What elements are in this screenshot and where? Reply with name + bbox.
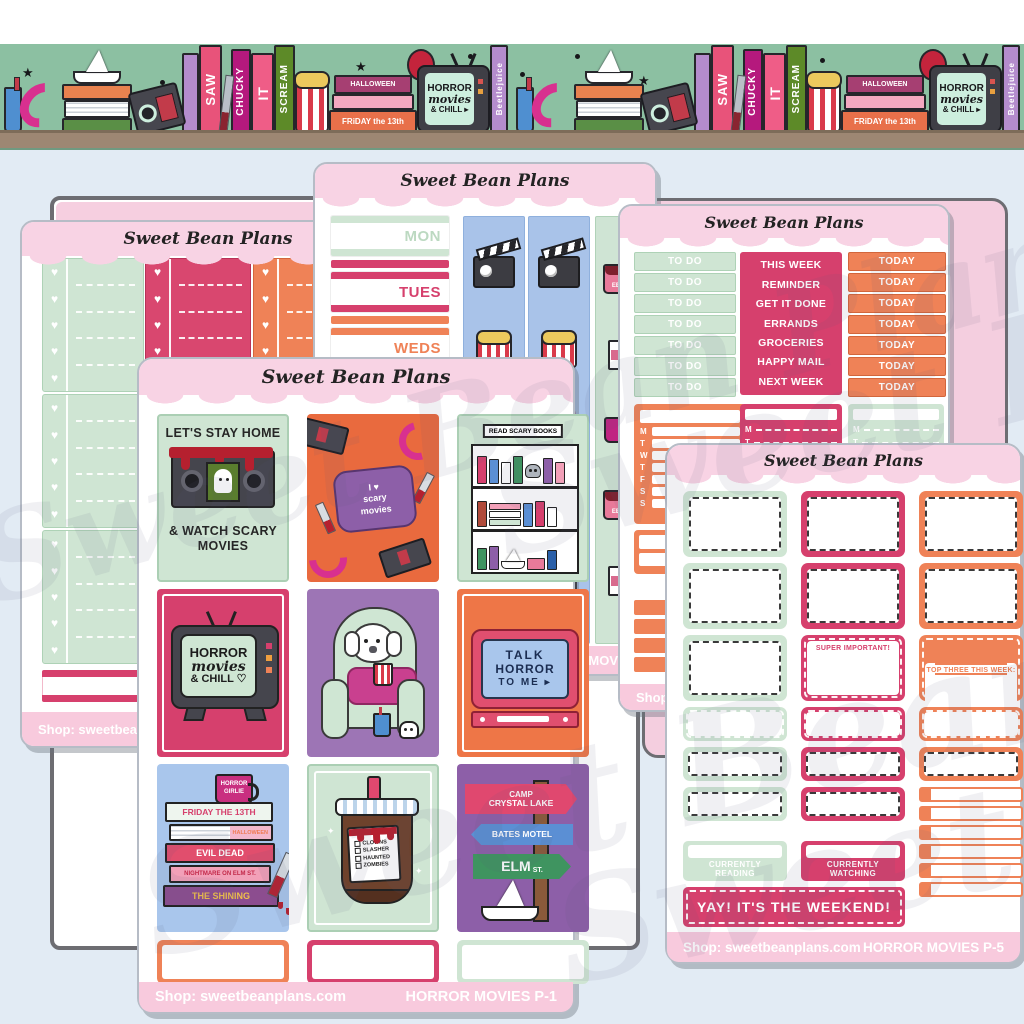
quarter-box xyxy=(801,747,905,781)
todo-strip: TO DO xyxy=(634,273,736,292)
half-box xyxy=(457,940,589,984)
quarter-box xyxy=(801,787,905,821)
fullbox-bookshelf: READ SCARY BOOKS xyxy=(457,414,589,582)
divider-strip xyxy=(331,260,449,268)
orange-label-strip xyxy=(919,806,1023,821)
brand-name: Sweet Bean Plans xyxy=(124,229,293,249)
drink-cup-illustration: CLOWNS SLASHER HAUNTED ZOMBIES xyxy=(341,812,413,904)
orange-label-strip xyxy=(919,863,1023,878)
date-cover-tues: TUES xyxy=(331,272,449,312)
today-strip: TODAY xyxy=(848,273,946,292)
saw-book: SAW xyxy=(711,45,734,133)
tv-horror-movies-chill: HORROR movies & CHILL ▸ xyxy=(417,65,490,133)
sheet-header: Sweet Bean Plans xyxy=(315,164,655,198)
shelf xyxy=(0,130,1024,148)
top-margin xyxy=(0,0,1024,44)
dog-icon xyxy=(351,623,395,663)
today-strip: TODAY xyxy=(848,252,946,271)
sheet-header: Sweet Bean Plans xyxy=(620,206,948,238)
clapperboard-icon xyxy=(473,256,515,288)
tv-horror-movies-chill: HORROR movies & CHILL ▸ xyxy=(929,65,1002,133)
vhs-icon xyxy=(307,417,350,456)
heart-checklist-box: ♥♥♥♥♥ xyxy=(42,258,144,392)
halloween-book-stack: HALLOWEEN FRiDAY the 13th xyxy=(841,75,929,133)
super-important-box: SUPER IMPORTANT! xyxy=(801,635,905,701)
half-box xyxy=(157,940,289,984)
horror-shelf-banner: ★ ★ ★ ★ SAW CHUCKY xyxy=(0,44,1024,150)
book-spine: HALLOWEEN xyxy=(169,824,273,841)
currently-watching-box: CURRENTLY WATCHING xyxy=(801,841,905,881)
heart-checklist-box: ♥♥♥♥♥ xyxy=(42,394,144,528)
book-spine: FRIDAY THE 13TH xyxy=(165,802,273,822)
sign-bates-motel: BATES MOTEL xyxy=(471,824,573,845)
sign-elm-st: ELM ST. xyxy=(473,854,571,879)
todo-strip: TO DO xyxy=(634,378,736,397)
brand-name: Sweet Bean Plans xyxy=(262,366,451,388)
tv-illustration: HORROR movies & CHILL ♡ xyxy=(171,625,279,709)
half-box-dashed xyxy=(801,563,905,629)
today-strip: TODAY xyxy=(848,378,946,397)
half-box-dashed xyxy=(801,491,905,557)
it-book: IT xyxy=(251,53,274,133)
phone-icon xyxy=(392,415,439,467)
tv-illustration: TALK HORROR TO ME ▸ xyxy=(471,629,579,709)
book-stack-boat-icon xyxy=(574,50,644,133)
orange-label-strip xyxy=(919,844,1023,859)
vhs-icon xyxy=(378,537,432,578)
paper-boat-icon xyxy=(481,880,539,921)
shop-url: Shop: sweetbeanplans.com xyxy=(683,940,861,955)
orange-label-strip xyxy=(919,882,1023,897)
weekly-labels-block: THIS WEEKREMINDER GET IT DONEERRANDS GRO… xyxy=(740,252,842,395)
fullbox-scary-pattern: I ♥ scary movies xyxy=(307,414,439,582)
stay-home-title: LET'S STAY HOME xyxy=(159,426,287,440)
blood-drops xyxy=(278,902,283,909)
half-box-dashed xyxy=(683,635,787,701)
quarter-box xyxy=(683,787,787,821)
todo-strip: TO DO xyxy=(634,336,736,355)
currently-reading-box: CURRENTLY READING xyxy=(683,841,787,881)
product-image: ★ ★ ★ ★ SAW CHUCKY xyxy=(0,0,1024,1024)
ghost-icon xyxy=(214,469,232,493)
clapperboard-icon xyxy=(538,256,580,288)
half-box-dashed xyxy=(683,491,787,557)
quarter-box xyxy=(801,707,905,741)
chucky-book: CHUCKY xyxy=(231,49,252,133)
beetlejuice-book: Beetlejuice xyxy=(490,45,508,133)
scream-book: SCREAM xyxy=(786,45,807,133)
sticker-sheet-p5: Sweet Bean Plans SUPER IMPORTANT! TOP TH… xyxy=(665,443,1022,964)
book-spine: THE SHINING xyxy=(163,885,279,907)
fullbox-book-stack: HORROR GIRLIE FRIDAY THE 13TH HALLOWEEN … xyxy=(157,764,289,932)
book-spine: EVIL DEAD xyxy=(165,843,275,863)
fullbox-tv-chill: HORROR movies & CHILL ♡ xyxy=(157,589,289,757)
half-box-dashed xyxy=(919,563,1023,629)
sheet-footer: Shop: sweetbeanplans.com HORROR MOVIES P… xyxy=(667,932,1020,962)
half-box-dashed xyxy=(919,491,1023,557)
chucky-book: CHUCKY xyxy=(743,49,764,133)
quarter-box xyxy=(683,747,787,781)
banner-shelf-group: SAW CHUCKY IT SCREAM HALLOWEEN FRiDAY th… xyxy=(0,44,512,133)
saw-book: SAW xyxy=(199,45,222,133)
popcorn-icon xyxy=(807,81,841,133)
vhs-tape-icon xyxy=(128,82,187,137)
stay-home-subtitle: & WATCH SCARY MOVIES xyxy=(159,524,287,554)
read-scary-books-sign: READ SCARY BOOKS xyxy=(483,424,563,438)
it-book: IT xyxy=(763,53,786,133)
fullbox-stay-home: LET'S STAY HOME & WATCH SCARY MOVIES xyxy=(157,414,289,582)
knife-icon xyxy=(315,502,336,535)
halloween-book-stack: HALLOWEEN FRiDAY the 13th xyxy=(329,75,417,133)
half-box xyxy=(307,940,439,984)
paper-boat-icon xyxy=(501,549,525,569)
half-box-dashed xyxy=(683,563,787,629)
popcorn-icon xyxy=(295,81,329,133)
quarter-box xyxy=(683,707,787,741)
product-code: HORROR MOVIES P-5 xyxy=(863,940,1004,955)
book-spine: NIGHTMARE ON ELM ST. xyxy=(169,865,271,883)
vhs-tape-icon xyxy=(640,82,699,137)
today-strip: TODAY xyxy=(848,336,946,355)
cup-lid xyxy=(335,798,419,816)
quarter-box xyxy=(919,747,1023,781)
orange-label-strip xyxy=(919,787,1023,802)
sheet-header: Sweet Bean Plans xyxy=(139,359,573,395)
todo-strip: TO DO xyxy=(634,357,736,376)
popcorn-icon xyxy=(373,663,393,686)
sheet-footer: Shop: sweetbeanplans.com HORROR MOVIES P… xyxy=(139,982,573,1012)
heart-checklist-box: ♥♥♥♥♥ xyxy=(42,530,144,664)
sheet-header: Sweet Bean Plans xyxy=(667,445,1020,475)
brand-name: Sweet Bean Plans xyxy=(704,213,863,232)
bookshelf-illustration xyxy=(471,444,579,574)
todo-strip: TO DO xyxy=(634,294,736,313)
skull-icon xyxy=(525,464,541,478)
scream-book: SCREAM xyxy=(274,45,295,133)
today-strip: TODAY xyxy=(848,357,946,376)
scary-movies-pillow: I ♥ scary movies xyxy=(332,464,418,534)
fullbox-dog-armchair xyxy=(307,589,439,757)
banner-shelf-group: SAW CHUCKY IT SCREAM HALLOWEEN FRiDAY th… xyxy=(512,44,1024,133)
sparkle-icon: ✦ xyxy=(327,826,335,837)
sparkle-icon: ✦ xyxy=(415,866,423,877)
vhs-illustration xyxy=(171,450,275,508)
orange-label-strip xyxy=(919,825,1023,840)
horror-girlie-mug: HORROR GIRLIE xyxy=(215,774,253,804)
top-three-box: TOP THREE THIS WEEK: xyxy=(919,635,1023,701)
sign-camp-crystal-lake: CAMP CRYSTAL LAKE xyxy=(465,784,577,814)
brand-name: Sweet Bean Plans xyxy=(764,451,923,470)
date-cover-mon: MON xyxy=(331,216,449,256)
today-strip: TODAY xyxy=(848,315,946,334)
fullbox-talk-horror: TALK HORROR TO ME ▸ xyxy=(457,589,589,757)
brand-name: Sweet Bean Plans xyxy=(401,171,570,191)
soda-cup-icon xyxy=(373,713,391,737)
fullbox-horror-drink: CLOWNS SLASHER HAUNTED ZOMBIES ✦ ✦ xyxy=(307,764,439,932)
pink-label-strip xyxy=(42,670,142,702)
product-code: HORROR MOVIES P-1 xyxy=(406,989,557,1005)
weekend-banner: YAY! IT'S THE WEEKEND! xyxy=(683,887,905,927)
today-strip: TODAY xyxy=(848,294,946,313)
fullbox-signpost: CAMP CRYSTAL LAKE BATES MOTEL ELM ST. xyxy=(457,764,589,932)
sticker-sheet-p1: Sweet Bean Plans LET'S STAY HOME & WATCH… xyxy=(137,357,575,1014)
shop-url: Shop: sweetbeanplans.com xyxy=(155,989,346,1005)
divider-strip xyxy=(331,316,449,324)
todo-strip: TO DO xyxy=(634,315,736,334)
beetlejuice-book: Beetlejuice xyxy=(1002,45,1020,133)
todo-strip: TO DO xyxy=(634,252,736,271)
phone-icon xyxy=(307,532,355,582)
quarter-box xyxy=(919,707,1023,741)
knife-icon xyxy=(412,472,435,504)
skull-icon xyxy=(399,721,419,739)
book-stack-boat-icon xyxy=(62,50,132,133)
